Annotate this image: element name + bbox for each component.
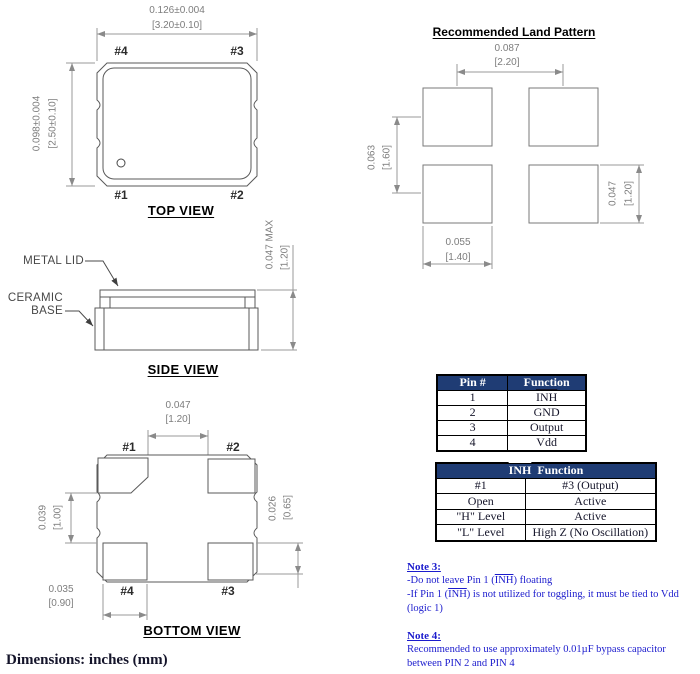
inh-overline-text: INH	[448, 589, 467, 600]
note-3-line-2: -If Pin 1 (INH) is not utilized for togg…	[407, 588, 700, 602]
pin-1-function-cell: INH	[508, 390, 586, 405]
table-row: 4 Vdd	[437, 435, 586, 451]
inh-open-cell: Open	[436, 494, 525, 510]
top-view-pin4-label: #4	[106, 44, 136, 58]
land-pattern-pitch-v-mm: [1.60]	[381, 128, 394, 188]
bottom-view-bottom-dim-inches: 0.035	[21, 583, 101, 596]
land-pattern-pad-width-inches: 0.055	[418, 236, 498, 249]
bottom-view-right-dim-mm: [0.65]	[282, 478, 295, 538]
ceramic-label: CERAMIC	[0, 292, 63, 304]
side-view-title: SIDE VIEW	[133, 362, 233, 377]
bottom-view-left-dim-mm: [1.00]	[52, 488, 65, 548]
inh-low-result-cell: High Z (No Oscillation)	[525, 525, 656, 541]
inh-table-header-row: INH Function	[436, 463, 656, 478]
metal-lid-label: METAL LID	[14, 255, 84, 267]
notes-spacer	[407, 616, 700, 629]
bottom-view-left-dim-inches: 0.039	[37, 488, 50, 548]
table-row: 1 INH	[437, 390, 586, 405]
side-view-drawing	[65, 245, 297, 350]
inh-function-table: INH Function #1 #3 (Output) Open Active …	[435, 462, 657, 542]
bottom-view-top-dim-inches: 0.047	[138, 399, 218, 412]
table-row: "H" Level Active	[436, 509, 656, 525]
top-view-pin3-label: #3	[222, 44, 252, 58]
pin-3-function-cell: Output	[508, 420, 586, 435]
land-pattern-pitch-h-inches: 0.087	[467, 42, 547, 55]
bottom-view-top-dim-mm: [1.20]	[138, 413, 218, 426]
land-pattern-pitch-v-inches: 0.063	[366, 128, 379, 188]
bottom-view-title: BOTTOM VIEW	[127, 623, 257, 638]
inh-col1-cell: #1	[436, 478, 525, 494]
bottom-view-pin4-label: #4	[112, 584, 142, 598]
top-view-width-dim-inches: 0.126±0.004	[112, 4, 242, 17]
land-pattern-pad-height-inches: 0.047	[607, 164, 620, 224]
table-row: Open Active	[436, 494, 656, 510]
bottom-view-pin3-label: #3	[213, 584, 243, 598]
inh-col2-cell: #3 (Output)	[525, 478, 656, 494]
inh-high-result-cell: Active	[525, 509, 656, 525]
land-pattern-pad-width-mm: [1.40]	[418, 251, 498, 264]
table-row: 2 GND	[437, 405, 586, 420]
note-4-title: Note 4:	[407, 629, 700, 643]
bottom-view-bottom-dim-mm: [0.90]	[21, 597, 101, 610]
pin-number-header: Pin #	[437, 375, 508, 390]
note-4-line-1: Recommended to use approximately 0.01µF …	[407, 643, 700, 657]
table-row: "L" Level High Z (No Oscillation)	[436, 525, 656, 541]
note-4-line-2: between PIN 2 and PIN 4	[407, 657, 700, 671]
function-header: Function	[508, 375, 586, 390]
land-pattern-pitch-h-mm: [2.20]	[467, 56, 547, 69]
table-row: 3 Output	[437, 420, 586, 435]
pin-2-function-cell: GND	[508, 405, 586, 420]
pin-function-table: Pin # Function 1 INH 2 GND 3 Output 4 Vd…	[436, 374, 587, 452]
top-view-pin2-label: #2	[222, 188, 252, 202]
inh-overline-text: INH	[536, 390, 557, 404]
pin-2-cell: 2	[437, 405, 508, 420]
notes-section: Note 3: -Do not leave Pin 1 (INH) floati…	[407, 560, 700, 671]
land-pattern-pad-height-mm: [1.20]	[623, 164, 636, 224]
inh-overline-text: INH	[509, 463, 532, 477]
pin-1-cell: 1	[437, 390, 508, 405]
inh-function-header: INH Function	[436, 463, 656, 478]
note-3-line-1: -Do not leave Pin 1 (INH) floating	[407, 574, 700, 588]
pin-4-function-cell: Vdd	[508, 435, 586, 451]
side-view-height-dim-inches: 0.047 MAX	[264, 200, 277, 290]
note-3-title: Note 3:	[407, 560, 700, 574]
top-view-height-dim-mm: [2.50±0.10]	[47, 74, 60, 174]
inh-low-cell: "L" Level	[436, 525, 525, 541]
inh-overline-text: INH	[495, 575, 514, 586]
inh-high-cell: "H" Level	[436, 509, 525, 525]
pin-3-cell: 3	[437, 420, 508, 435]
bottom-view-pin1-label: #1	[114, 440, 144, 454]
side-view-height-dim-mm: [1.20]	[279, 228, 292, 288]
pin-table-header-row: Pin # Function	[437, 375, 586, 390]
dimensions-units-note: Dimensions: inches (mm)	[6, 652, 168, 669]
base-label: BASE	[0, 305, 63, 317]
top-view-pin1-label: #1	[106, 188, 136, 202]
top-view-height-dim-inches: 0.098±0.004	[31, 74, 44, 174]
land-pattern-title: Recommended Land Pattern	[404, 25, 624, 39]
inh-open-result-cell: Active	[525, 494, 656, 510]
note-3-line-3: (logic 1)	[407, 602, 700, 616]
inh-header-rest: Function	[531, 463, 583, 477]
top-view-width-dim-mm: [3.20±0.10]	[112, 19, 242, 32]
bottom-view-pin2-label: #2	[218, 440, 248, 454]
table-row: #1 #3 (Output)	[436, 478, 656, 494]
datasheet-mechanical-drawing-page: 0.126±0.004 [3.20±0.10] 0.098±0.004 [2.5…	[0, 0, 700, 674]
top-view-title: TOP VIEW	[131, 203, 231, 218]
bottom-view-right-dim-inches: 0.026	[267, 479, 280, 539]
pin-4-cell: 4	[437, 435, 508, 451]
